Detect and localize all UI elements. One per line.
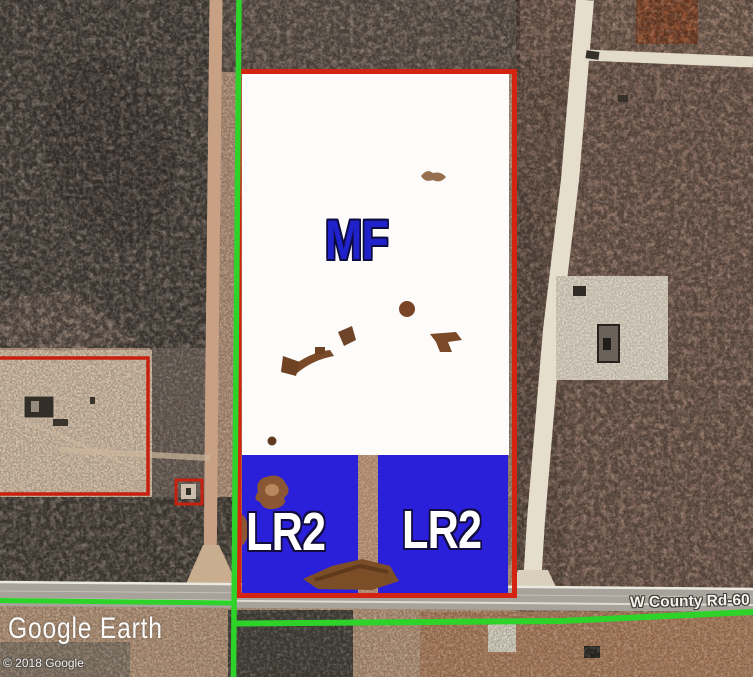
section-line-horizontal-left <box>0 601 236 604</box>
branch-road <box>585 55 753 62</box>
road-name-label: W County Rd-60 <box>630 593 750 611</box>
lr2-zone-label-left: LR2 <box>246 505 325 559</box>
satellite-scene <box>0 0 753 677</box>
google-earth-watermark: Google Earth <box>8 614 163 644</box>
map-canvas[interactable]: MF LR2 LR2 W County Rd-60 Google Earth ©… <box>0 0 753 677</box>
mf-zone-label: MF <box>325 212 388 268</box>
lr2-zone-label-right: LR2 <box>402 503 481 557</box>
vehicle <box>618 95 628 102</box>
copyright-text: © 2018 Google <box>3 657 84 669</box>
dirt-road-left <box>210 0 216 580</box>
